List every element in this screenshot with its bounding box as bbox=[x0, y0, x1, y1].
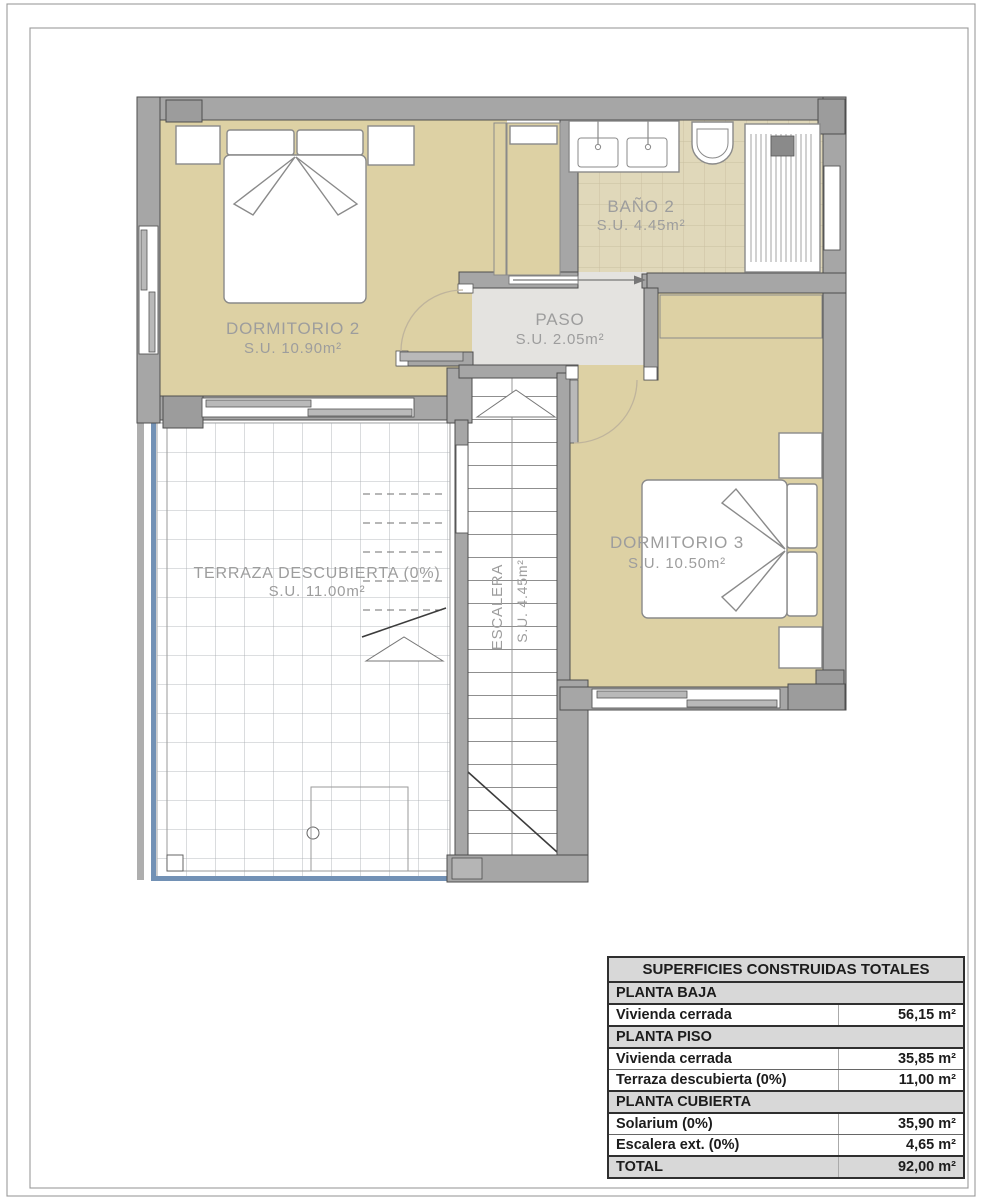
terraza-label: TERRAZA DESCUBIERTA (0%) bbox=[193, 565, 440, 582]
dormitorio3-label: DORMITORIO 3 bbox=[610, 533, 744, 552]
row-value: 35,85 m² bbox=[839, 1048, 965, 1070]
areas-table: SUPERFICIES CONSTRUIDAS TOTALES PLANTA B… bbox=[607, 956, 965, 1179]
terrace-outer-wall-edge bbox=[137, 423, 144, 880]
double-sink-icon bbox=[569, 121, 679, 172]
table-row: PLANTA BAJA bbox=[608, 982, 964, 1004]
door-leaf bbox=[400, 352, 463, 361]
pillow-icon bbox=[227, 130, 294, 155]
total-label: TOTAL bbox=[608, 1156, 839, 1178]
window-dormitorio2-left bbox=[139, 226, 158, 354]
section-label: PLANTA PISO bbox=[608, 1026, 964, 1048]
plan-sheet: DORMITORIO 2 S.U. 10.90m² BAÑO 2 S.U. 4.… bbox=[0, 0, 982, 1200]
pillar bbox=[818, 99, 845, 134]
row-value: 56,15 m² bbox=[839, 1004, 965, 1026]
faucet-icon bbox=[645, 144, 650, 149]
table-row: Vivienda cerrada 35,85 m² bbox=[608, 1048, 964, 1070]
window-bathroom-right bbox=[824, 166, 840, 250]
pillar bbox=[788, 684, 845, 710]
bano2-area-label: S.U. 4.45m² bbox=[597, 217, 686, 234]
table-row: Solarium (0%) 35,90 m² bbox=[608, 1113, 964, 1135]
row-label: Escalera ext. (0%) bbox=[608, 1135, 839, 1157]
stair-base-block bbox=[452, 858, 482, 879]
bano2-label: BAÑO 2 bbox=[607, 197, 674, 216]
row-label: Vivienda cerrada bbox=[608, 1048, 839, 1070]
row-label: Vivienda cerrada bbox=[608, 1004, 839, 1026]
table-row: TOTAL 92,00 m² bbox=[608, 1156, 964, 1178]
row-label: Solarium (0%) bbox=[608, 1113, 839, 1135]
pillar bbox=[163, 396, 203, 428]
table-row: Vivienda cerrada 56,15 m² bbox=[608, 1004, 964, 1026]
escalera-label: ESCALERA bbox=[489, 564, 506, 650]
table-row: Escalera ext. (0%) 4,65 m² bbox=[608, 1135, 964, 1157]
escalera-area-label: S.U. 4.45m² bbox=[514, 559, 530, 643]
closet-icon bbox=[494, 123, 560, 275]
room-escalera bbox=[468, 378, 557, 855]
dormitorio2-area-label: S.U. 10.90m² bbox=[244, 340, 342, 357]
window-dormitorio3-bottom bbox=[592, 689, 780, 708]
pillow-icon bbox=[297, 130, 363, 155]
nightstand-icon bbox=[176, 126, 220, 164]
section-label: PLANTA BAJA bbox=[608, 982, 964, 1004]
window-stair-left bbox=[456, 445, 468, 533]
dormitorio2-label: DORMITORIO 2 bbox=[226, 319, 360, 338]
paso-area-label: S.U. 2.05m² bbox=[516, 331, 605, 348]
railing-post-round-icon bbox=[307, 827, 319, 839]
faucet-icon bbox=[595, 144, 600, 149]
row-label: Terraza descubierta (0%) bbox=[608, 1070, 839, 1092]
pillar bbox=[166, 100, 202, 122]
terraza-area-label: S.U. 11.00m² bbox=[269, 583, 366, 600]
row-value: 4,65 m² bbox=[839, 1135, 965, 1157]
row-value: 35,90 m² bbox=[839, 1113, 965, 1135]
toilet-icon bbox=[692, 122, 733, 164]
table-row: Terraza descubierta (0%) 11,00 m² bbox=[608, 1070, 964, 1092]
nightstand-icon bbox=[368, 126, 414, 165]
shower-drain-icon bbox=[771, 136, 794, 156]
pillow-icon bbox=[787, 484, 817, 548]
door-leaf bbox=[570, 380, 578, 443]
closet-shelf bbox=[510, 126, 557, 144]
table-row: PLANTA PISO bbox=[608, 1026, 964, 1048]
total-value: 92,00 m² bbox=[839, 1156, 965, 1178]
room-terraza bbox=[137, 423, 450, 881]
railing-post-icon bbox=[167, 855, 183, 871]
nightstand-icon bbox=[779, 433, 822, 478]
window-dormitorio2-bottom bbox=[202, 398, 414, 417]
table-row: PLANTA CUBIERTA bbox=[608, 1091, 964, 1113]
dormitorio3-area-label: S.U. 10.50m² bbox=[628, 555, 726, 572]
section-label: PLANTA CUBIERTA bbox=[608, 1091, 964, 1113]
paso-label: PASO bbox=[535, 310, 584, 329]
shower-icon bbox=[745, 124, 820, 272]
table-row: SUPERFICIES CONSTRUIDAS TOTALES bbox=[608, 957, 964, 982]
pillow-icon bbox=[787, 552, 817, 616]
row-value: 11,00 m² bbox=[839, 1070, 965, 1092]
table-title: SUPERFICIES CONSTRUIDAS TOTALES bbox=[608, 957, 964, 982]
nightstand-icon bbox=[779, 627, 822, 668]
